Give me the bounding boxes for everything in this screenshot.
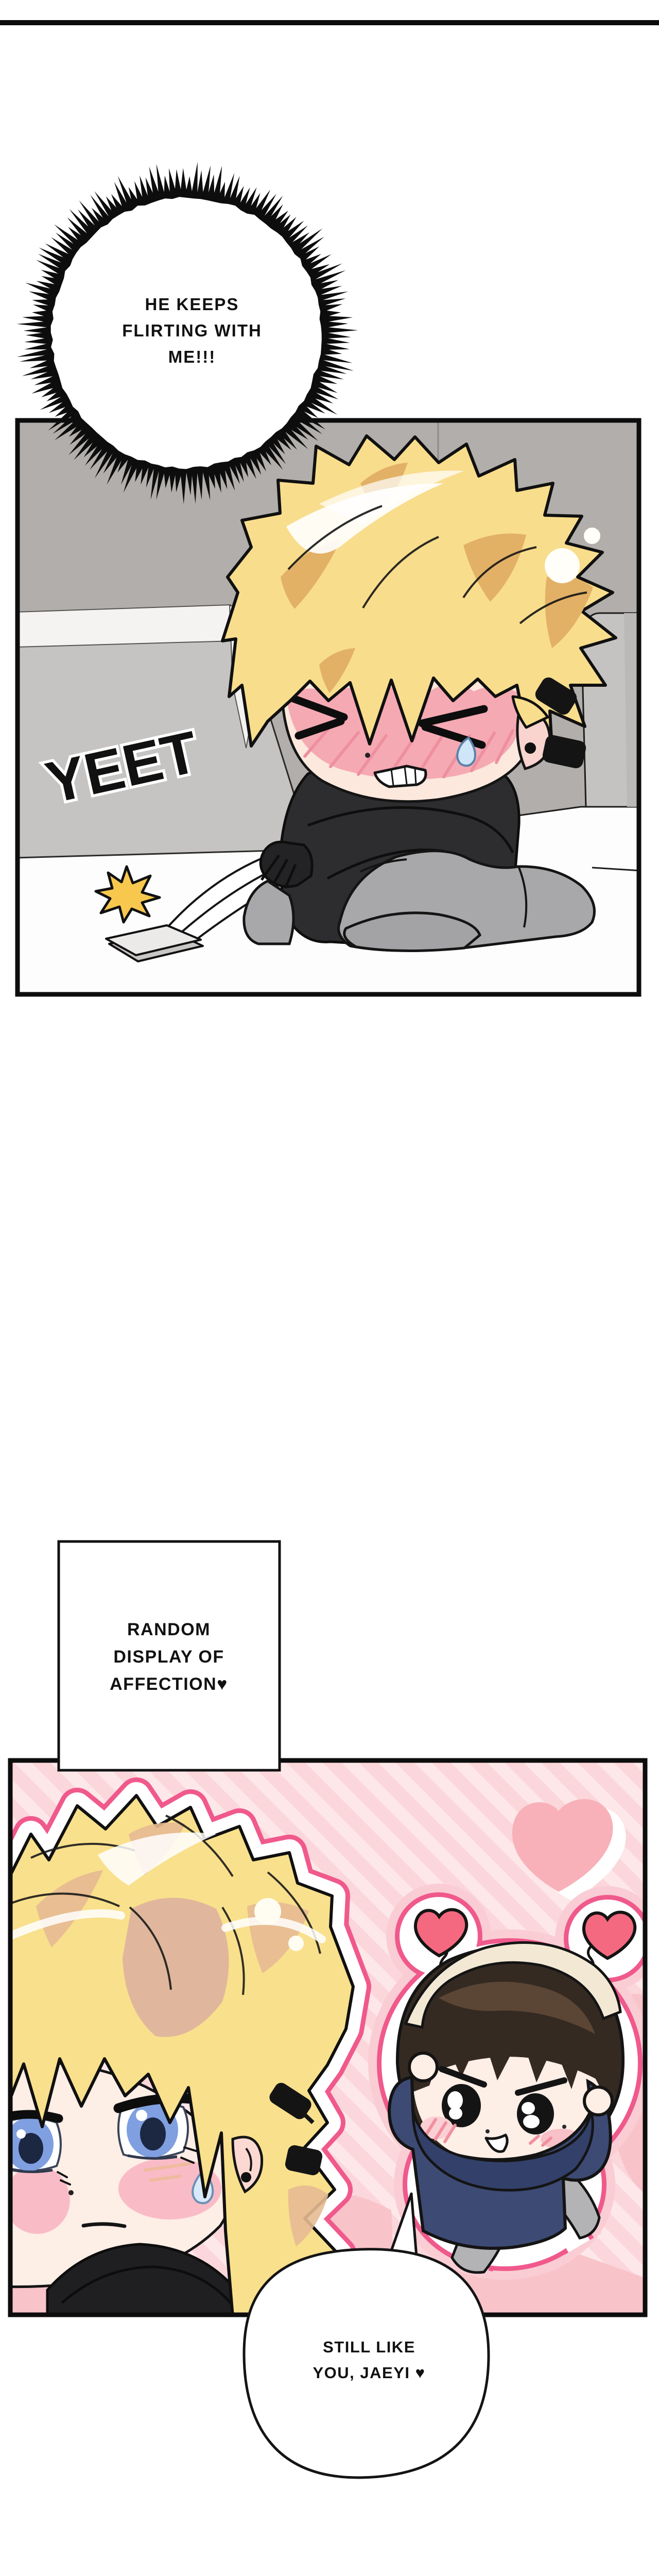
svg-text:AFFECTION♥: AFFECTION♥ xyxy=(110,1674,228,1694)
svg-text:YOU, JAEYI ♥: YOU, JAEYI ♥ xyxy=(313,2364,425,2382)
svg-text:ME!!!: ME!!! xyxy=(168,347,216,366)
svg-text:STILL LIKE: STILL LIKE xyxy=(323,2338,415,2356)
svg-text:FLIRTING WITH: FLIRTING WITH xyxy=(122,321,262,340)
svg-text:RANDOM: RANDOM xyxy=(127,1620,211,1639)
svg-text:HE KEEPS: HE KEEPS xyxy=(145,295,239,314)
svg-text:DISPLAY OF: DISPLAY OF xyxy=(113,1647,224,1667)
